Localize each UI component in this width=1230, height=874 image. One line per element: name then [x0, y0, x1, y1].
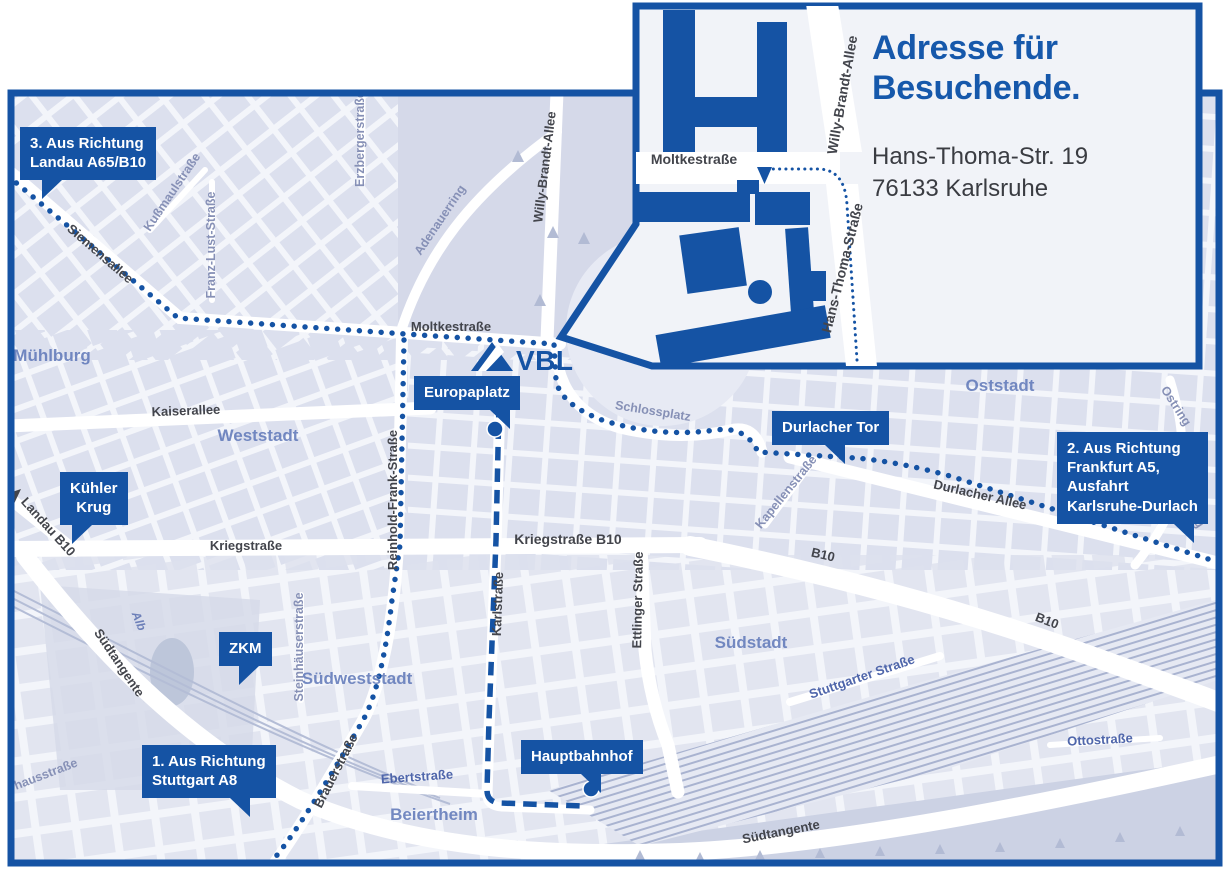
district-label-suedweststadt: Südweststadt [302, 669, 413, 688]
district-label-suedstadt: Südstadt [715, 633, 788, 652]
badge-stuttgart-a8: 1. Aus Richtung Stuttgart A8 [142, 745, 276, 798]
street-label-kriegstrasse-b10: Kriegstraße B10 [514, 531, 622, 547]
inset-street-label-moltkestrasse: Moltkestraße [651, 151, 738, 167]
vbl-directions-map: Siemensallee Moltkestraße Kaiserallee Kr… [0, 0, 1230, 874]
street-label-kriegstrasse: Kriegstraße [210, 538, 282, 553]
street-label-karlstrasse: Karlstraße [489, 572, 506, 637]
badge-hauptbahnhof: Hauptbahnhof [521, 740, 643, 774]
badge-europaplatz: Europaplatz [414, 376, 520, 410]
vbl-logo-text: VBL [516, 345, 574, 376]
badge-zkm: ZKM [219, 632, 272, 666]
district-label-beiertheim: Beiertheim [390, 805, 478, 824]
street-label-reinhold-frank-strasse: Reinhold-Frank-Straße [385, 430, 400, 570]
badge-frankfurt-a5: 2. Aus Richtung Frankfurt A5, Ausfahrt K… [1057, 432, 1208, 524]
badge-kuehler-krug: Kühler Krug [60, 472, 128, 525]
street-label-erzbergerstrasse: Erzbergerstraße [353, 91, 367, 187]
street-label-ettlinger-strasse: Ettlinger Straße [629, 551, 646, 648]
street-label-franz-lust-strasse: Franz-Lust-Straße [204, 191, 218, 298]
district-label-weststadt: Weststadt [218, 426, 299, 445]
street-label-moltkestrasse: Moltkestraße [411, 319, 491, 334]
inset-title: Adresse für Besuchende. [872, 28, 1080, 108]
district-label-oststadt: Oststadt [966, 376, 1035, 395]
badge-landau-a65-b10: 3. Aus Richtung Landau A65/B10 [20, 127, 156, 180]
district-label-muehlburg: Mühlburg [13, 346, 90, 365]
badge-durlacher-tor: Durlacher Tor [772, 411, 889, 445]
inset-address: Hans-Thoma-Str. 19 76133 Karlsruhe [872, 141, 1088, 205]
street-label-kaiserallee: Kaiserallee [151, 402, 220, 419]
